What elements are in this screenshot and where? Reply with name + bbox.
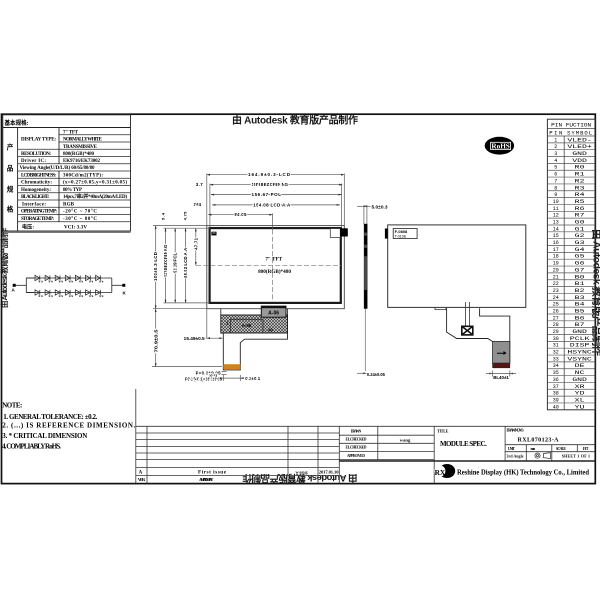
svg-text:28: 28 bbox=[553, 322, 559, 328]
svg-text:F-0808: F-0808 bbox=[395, 229, 408, 234]
svg-text:RoHS: RoHS bbox=[491, 142, 509, 150]
svg-text:B2: B2 bbox=[575, 288, 585, 294]
svg-text:800(RGB)*480: 800(RGB)*480 bbox=[258, 268, 291, 275]
svg-text:G2: G2 bbox=[575, 233, 585, 239]
svg-text:RX: RX bbox=[435, 468, 446, 477]
svg-text:TRANSMISSIVE: TRANSMISSIVE bbox=[63, 145, 98, 150]
svg-text:35: 35 bbox=[553, 370, 559, 376]
svg-text:34: 34 bbox=[553, 363, 559, 369]
svg-text:92.98 BZ OPENING: 92.98 BZ OPENING bbox=[163, 244, 168, 276]
svg-text:VER.: VER. bbox=[138, 477, 146, 482]
svg-text:G1: G1 bbox=[575, 226, 585, 232]
svg-text:37: 37 bbox=[553, 384, 559, 390]
svg-text:B6: B6 bbox=[575, 315, 585, 321]
svg-text:HSYNC: HSYNC bbox=[567, 350, 592, 356]
svg-text:B3: B3 bbox=[575, 295, 585, 301]
svg-text:R6: R6 bbox=[575, 206, 585, 212]
svg-text:R0: R0 bbox=[575, 165, 585, 171]
svg-text:17: 17 bbox=[553, 247, 559, 253]
svg-text:wang: wang bbox=[400, 438, 411, 443]
svg-text:VLED+: VLED+ bbox=[567, 144, 592, 150]
svg-text:-20°C ~ 70°C: -20°C ~ 70°C bbox=[63, 210, 97, 215]
svg-text:RESOLUTION:: RESOLUTION: bbox=[21, 152, 51, 157]
svg-text:164.9±0.3 LCD: 164.9±0.3 LCD bbox=[248, 172, 291, 177]
svg-text:156.67 POL: 156.67 POL bbox=[252, 192, 282, 197]
svg-text:14: 14 bbox=[553, 226, 559, 232]
svg-text:32: 32 bbox=[553, 350, 559, 356]
svg-text:LCD BRIGHTNESS:: LCD BRIGHTNESS: bbox=[21, 173, 56, 178]
svg-text:300Cd/m2(TYP):: 300Cd/m2(TYP): bbox=[63, 173, 103, 178]
svg-text:由 Autodesk 教育版产品制作: 由 Autodesk 教育版产品制作 bbox=[0, 227, 9, 308]
svg-text:产: 产 bbox=[7, 143, 14, 152]
svg-text:0.24±0.05: 0.24±0.05 bbox=[367, 372, 386, 377]
svg-text:P0.3*(40-1)=16.3±0.05: P0.3*(40-1)=16.3±0.05 bbox=[185, 376, 223, 381]
svg-text:First issue: First issue bbox=[198, 470, 227, 476]
svg-text:EL.CHECKED: EL.CHECKED bbox=[346, 438, 367, 442]
svg-text:DE: DE bbox=[575, 363, 585, 369]
svg-text:G3: G3 bbox=[575, 240, 585, 246]
svg-text:23: 23 bbox=[553, 288, 559, 294]
svg-text:29: 29 bbox=[553, 329, 559, 335]
svg-text:mm: mm bbox=[531, 446, 536, 451]
svg-text:UNIT: UNIT bbox=[508, 446, 515, 451]
svg-text:85.92 LCD A.A: 85.92 LCD A.A bbox=[183, 247, 188, 278]
svg-text:14pcs,7串2并*40mA(20mA/LED): 14pcs,7串2并*40mA(20mA/LED) bbox=[63, 193, 127, 200]
svg-text:YU: YU bbox=[575, 404, 585, 410]
svg-text:13: 13 bbox=[553, 219, 559, 225]
svg-text:Interface:: Interface: bbox=[22, 202, 46, 207]
svg-text:A-06: A-06 bbox=[242, 323, 252, 328]
svg-text:PIN FUCTION: PIN FUCTION bbox=[551, 121, 591, 128]
svg-text:9: 9 bbox=[554, 192, 557, 198]
svg-text:24: 24 bbox=[553, 295, 559, 301]
svg-text:B4: B4 bbox=[575, 302, 585, 308]
svg-text:20: 20 bbox=[553, 267, 559, 273]
svg-text:DISPLAY TYPE:: DISPLAY TYPE: bbox=[21, 138, 56, 143]
svg-text:800(RGB)*480: 800(RGB)*480 bbox=[63, 152, 95, 157]
svg-text:2: 2 bbox=[554, 144, 557, 150]
svg-text:DISP: DISP bbox=[570, 343, 590, 349]
svg-text:G7: G7 bbox=[575, 267, 585, 273]
svg-text:R5: R5 bbox=[575, 199, 585, 205]
svg-text:NC: NC bbox=[575, 370, 585, 376]
svg-text:R3: R3 bbox=[575, 185, 585, 191]
svg-text:5.4: 5.4 bbox=[160, 212, 165, 220]
svg-text:规: 规 bbox=[7, 185, 14, 194]
svg-text:GND: GND bbox=[572, 151, 587, 157]
svg-text:EK9716/EK73002: EK9716/EK73002 bbox=[63, 159, 101, 164]
svg-text:APPROVED: APPROVED bbox=[347, 454, 365, 458]
svg-text:wang: wang bbox=[296, 469, 309, 474]
svg-text:33: 33 bbox=[553, 356, 559, 362]
svg-text:A: A bbox=[12, 288, 16, 293]
svg-text:TITLE: TITLE bbox=[437, 429, 449, 434]
svg-text:AMENDMENT: AMENDMENT bbox=[199, 477, 214, 482]
svg-text:36: 36 bbox=[553, 377, 559, 383]
svg-text:GND: GND bbox=[572, 377, 587, 383]
svg-text:STORAGE TEMP:: STORAGE TEMP: bbox=[21, 217, 54, 222]
svg-text:3. * CRITICAL DIMENSION: 3. * CRITICAL DIMENSION bbox=[2, 432, 87, 440]
svg-text:DRAWING NO.: DRAWING NO. bbox=[507, 428, 524, 433]
svg-text:VDD: VDD bbox=[572, 158, 587, 164]
svg-text:39: 39 bbox=[553, 397, 559, 403]
svg-text:1: 1 bbox=[554, 137, 557, 143]
svg-text:2. (...) IS REFERENCE DIMENSIO: 2. (...) IS REFERENCE DIMENSION. bbox=[2, 422, 135, 430]
svg-text:8: 8 bbox=[554, 185, 557, 191]
svg-text:27: 27 bbox=[553, 315, 559, 321]
svg-text:(x=0.27±0.05,y=0.31±0.05): (x=0.27±0.05,y=0.31±0.05) bbox=[63, 181, 127, 186]
svg-text:5.0±0.3: 5.0±0.3 bbox=[372, 204, 389, 209]
svg-text:12: 12 bbox=[553, 213, 559, 219]
svg-text:NOTE:: NOTE: bbox=[2, 401, 22, 409]
svg-text:2017.01.10: 2017.01.10 bbox=[319, 469, 339, 474]
svg-text:RGB: RGB bbox=[63, 202, 75, 207]
svg-text:NORMALLY WHITE: NORMALLY WHITE bbox=[63, 138, 103, 143]
svg-text:26: 26 bbox=[553, 308, 559, 314]
svg-text:16: 16 bbox=[553, 240, 559, 246]
svg-text:B1: B1 bbox=[575, 281, 585, 287]
svg-text:电压:: 电压: bbox=[22, 223, 34, 230]
svg-text:40: 40 bbox=[268, 327, 273, 332]
svg-text:T-0108: T-0108 bbox=[395, 235, 406, 239]
svg-text:SHEET 1 OF 1: SHEET 1 OF 1 bbox=[562, 454, 590, 459]
svg-text:A: A bbox=[139, 469, 143, 475]
svg-text:19: 19 bbox=[553, 261, 559, 267]
svg-text:R1: R1 bbox=[575, 172, 585, 178]
svg-text:4: 4 bbox=[554, 158, 557, 164]
svg-text:品: 品 bbox=[7, 164, 14, 173]
svg-text:由 Autodesk 教育版产品制作: 由 Autodesk 教育版产品制作 bbox=[232, 113, 358, 126]
svg-text:6: 6 bbox=[554, 172, 557, 178]
svg-text:BLACKLIGHT:: BLACKLIGHT: bbox=[21, 195, 49, 200]
svg-text:100±0.3 LCD: 100±0.3 LCD bbox=[153, 251, 158, 281]
svg-text:11: 11 bbox=[553, 206, 559, 212]
svg-text:30: 30 bbox=[553, 336, 559, 342]
svg-text:40: 40 bbox=[553, 404, 559, 410]
svg-text:5: 5 bbox=[554, 165, 557, 171]
svg-text:GND: GND bbox=[572, 329, 587, 335]
svg-text:38: 38 bbox=[553, 391, 559, 397]
svg-text:0.3±0.1: 0.3±0.1 bbox=[245, 376, 261, 381]
svg-text:7: 7 bbox=[554, 178, 557, 184]
svg-text:10: 10 bbox=[553, 199, 559, 205]
svg-text:PCLK: PCLK bbox=[570, 336, 591, 342]
svg-text:47.71: 47.71 bbox=[193, 237, 198, 249]
svg-text:RXL070123-A: RXL070123-A bbox=[518, 437, 560, 443]
svg-text:EL.CHECKED: EL.CHECKED bbox=[346, 446, 367, 450]
svg-text:XR: XR bbox=[575, 384, 586, 390]
svg-text:A-06: A-06 bbox=[268, 311, 279, 317]
svg-text:Viewing Angle(U/D/L/R) 60/65/: Viewing Angle(U/D/L/R) 60/65/80/80 bbox=[20, 166, 96, 171]
svg-text:基本规格:: 基本规格: bbox=[4, 119, 29, 127]
svg-text:G5: G5 bbox=[575, 254, 585, 260]
svg-text:3.7: 3.7 bbox=[196, 182, 203, 187]
svg-text:VCI: 3.3V: VCI: 3.3V bbox=[64, 225, 87, 230]
svg-text:-30°C ~ 80°C: -30°C ~ 80°C bbox=[63, 217, 97, 222]
svg-text:SCALE: SCALE bbox=[556, 446, 566, 451]
svg-text:SYMBOL: SYMBOL bbox=[567, 129, 592, 136]
svg-text:B5: B5 bbox=[575, 308, 585, 314]
svg-text:Chromaticity:: Chromaticity: bbox=[21, 181, 52, 186]
svg-text:BL40±1: BL40±1 bbox=[493, 375, 509, 380]
svg-text:80% TYP: 80% TYP bbox=[63, 188, 82, 193]
svg-text:7" TFT: 7" TFT bbox=[63, 130, 79, 135]
svg-text:OPERATING TEMP:: OPERATING TEMP: bbox=[21, 210, 57, 215]
svg-text:DRAWN: DRAWN bbox=[351, 429, 362, 433]
svg-text:VSYNC: VSYNC bbox=[567, 356, 592, 362]
svg-text:7" TFT: 7" TFT bbox=[265, 256, 282, 262]
svg-text:70.9±0.5: 70.9±0.5 bbox=[153, 329, 158, 353]
svg-text:XL: XL bbox=[575, 397, 585, 403]
svg-text:21: 21 bbox=[553, 274, 559, 280]
svg-text:4. COMPLIABLY RoHS.: 4. COMPLIABLY RoHS. bbox=[2, 443, 61, 451]
svg-text:1. GENERAL TOLERANCE: ±0.2.: 1. GENERAL TOLERANCE: ±0.2. bbox=[3, 413, 97, 421]
svg-text:4.75: 4.75 bbox=[183, 211, 188, 220]
svg-text:Reshine Display (HK) Technolog: Reshine Display (HK) Technology Co., Lim… bbox=[457, 468, 590, 477]
svg-text:MODULE SPEC.: MODULE SPEC. bbox=[440, 440, 487, 448]
svg-text:91.19 POL: 91.19 POL bbox=[173, 252, 178, 272]
svg-text:R2: R2 bbox=[575, 178, 585, 184]
svg-text:K: K bbox=[123, 291, 127, 296]
svg-text:格: 格 bbox=[7, 205, 14, 214]
svg-text:158.98 BZ OPENING: 158.98 BZ OPENING bbox=[252, 182, 289, 187]
svg-text:15: 15 bbox=[553, 233, 559, 239]
svg-text:25: 25 bbox=[553, 302, 559, 308]
svg-text:Homogeneity:: Homogeneity: bbox=[21, 188, 51, 193]
svg-text:18: 18 bbox=[553, 254, 559, 260]
svg-text:B7: B7 bbox=[575, 322, 585, 328]
svg-text:3rd Angle: 3rd Angle bbox=[507, 454, 524, 459]
svg-text:R4: R4 bbox=[575, 192, 585, 198]
svg-text:Driver IC:: Driver IC: bbox=[21, 159, 46, 164]
svg-text:15.49±0.5: 15.49±0.5 bbox=[184, 336, 206, 341]
svg-text:3: 3 bbox=[554, 151, 557, 157]
svg-text:3.64: 3.64 bbox=[194, 202, 202, 207]
svg-text:22: 22 bbox=[553, 281, 559, 287]
svg-text:PIN: PIN bbox=[549, 129, 562, 136]
svg-text:154.08 LCD A.A: 154.08 LCD A.A bbox=[253, 202, 291, 207]
svg-text:YD: YD bbox=[575, 391, 585, 397]
svg-text:G6: G6 bbox=[575, 261, 585, 267]
svg-text:84.05: 84.05 bbox=[235, 212, 247, 217]
svg-text:VLED-: VLED- bbox=[567, 137, 592, 143]
svg-text:31: 31 bbox=[553, 343, 559, 349]
svg-text:G4: G4 bbox=[575, 247, 585, 253]
svg-text:FIT: FIT bbox=[583, 446, 589, 451]
svg-text:B0: B0 bbox=[575, 274, 585, 280]
svg-text:R7: R7 bbox=[575, 213, 585, 219]
svg-text:G0: G0 bbox=[575, 219, 585, 225]
